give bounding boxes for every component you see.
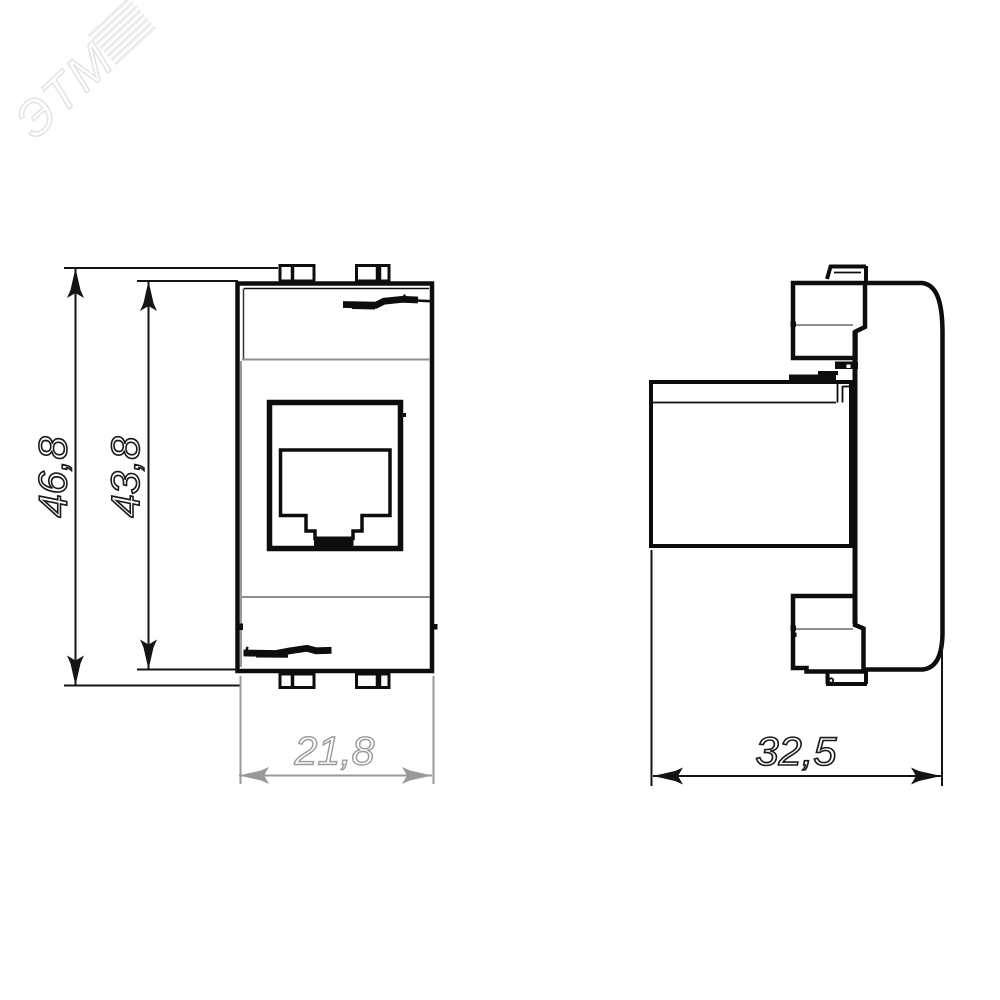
- svg-text:21,8: 21,8: [293, 730, 375, 774]
- svg-text:32,5: 32,5: [756, 730, 838, 774]
- svg-text:43,8: 43,8: [104, 436, 148, 518]
- svg-text:46,8: 46,8: [32, 436, 76, 518]
